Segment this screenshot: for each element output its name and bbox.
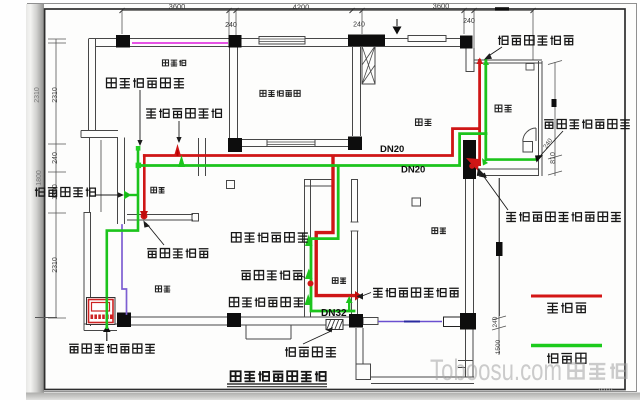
svg-text:Toboosu.com: Toboosu.com	[430, 354, 562, 387]
svg-text:1500: 1500	[495, 339, 502, 354]
svg-text:xxxxxx: xxxxxx	[598, 387, 614, 393]
svg-text:2310: 2310	[52, 87, 59, 103]
svg-text:240: 240	[463, 18, 475, 25]
svg-text:3600: 3600	[433, 2, 450, 11]
svg-text:810: 810	[550, 152, 557, 164]
svg-text:DN20: DN20	[380, 144, 404, 155]
svg-text:1800: 1800	[36, 170, 43, 186]
svg-text:2310: 2310	[34, 87, 41, 103]
svg-text:DN32: DN32	[321, 308, 347, 319]
svg-text:240: 240	[353, 22, 365, 29]
svg-text:2310: 2310	[52, 257, 59, 273]
svg-text:240: 240	[52, 152, 59, 164]
svg-text:DN20: DN20	[401, 165, 425, 176]
svg-text:240: 240	[225, 22, 237, 29]
svg-text:3600: 3600	[169, 2, 186, 11]
svg-text:240: 240	[492, 316, 499, 327]
svg-text:4200: 4200	[293, 3, 310, 12]
